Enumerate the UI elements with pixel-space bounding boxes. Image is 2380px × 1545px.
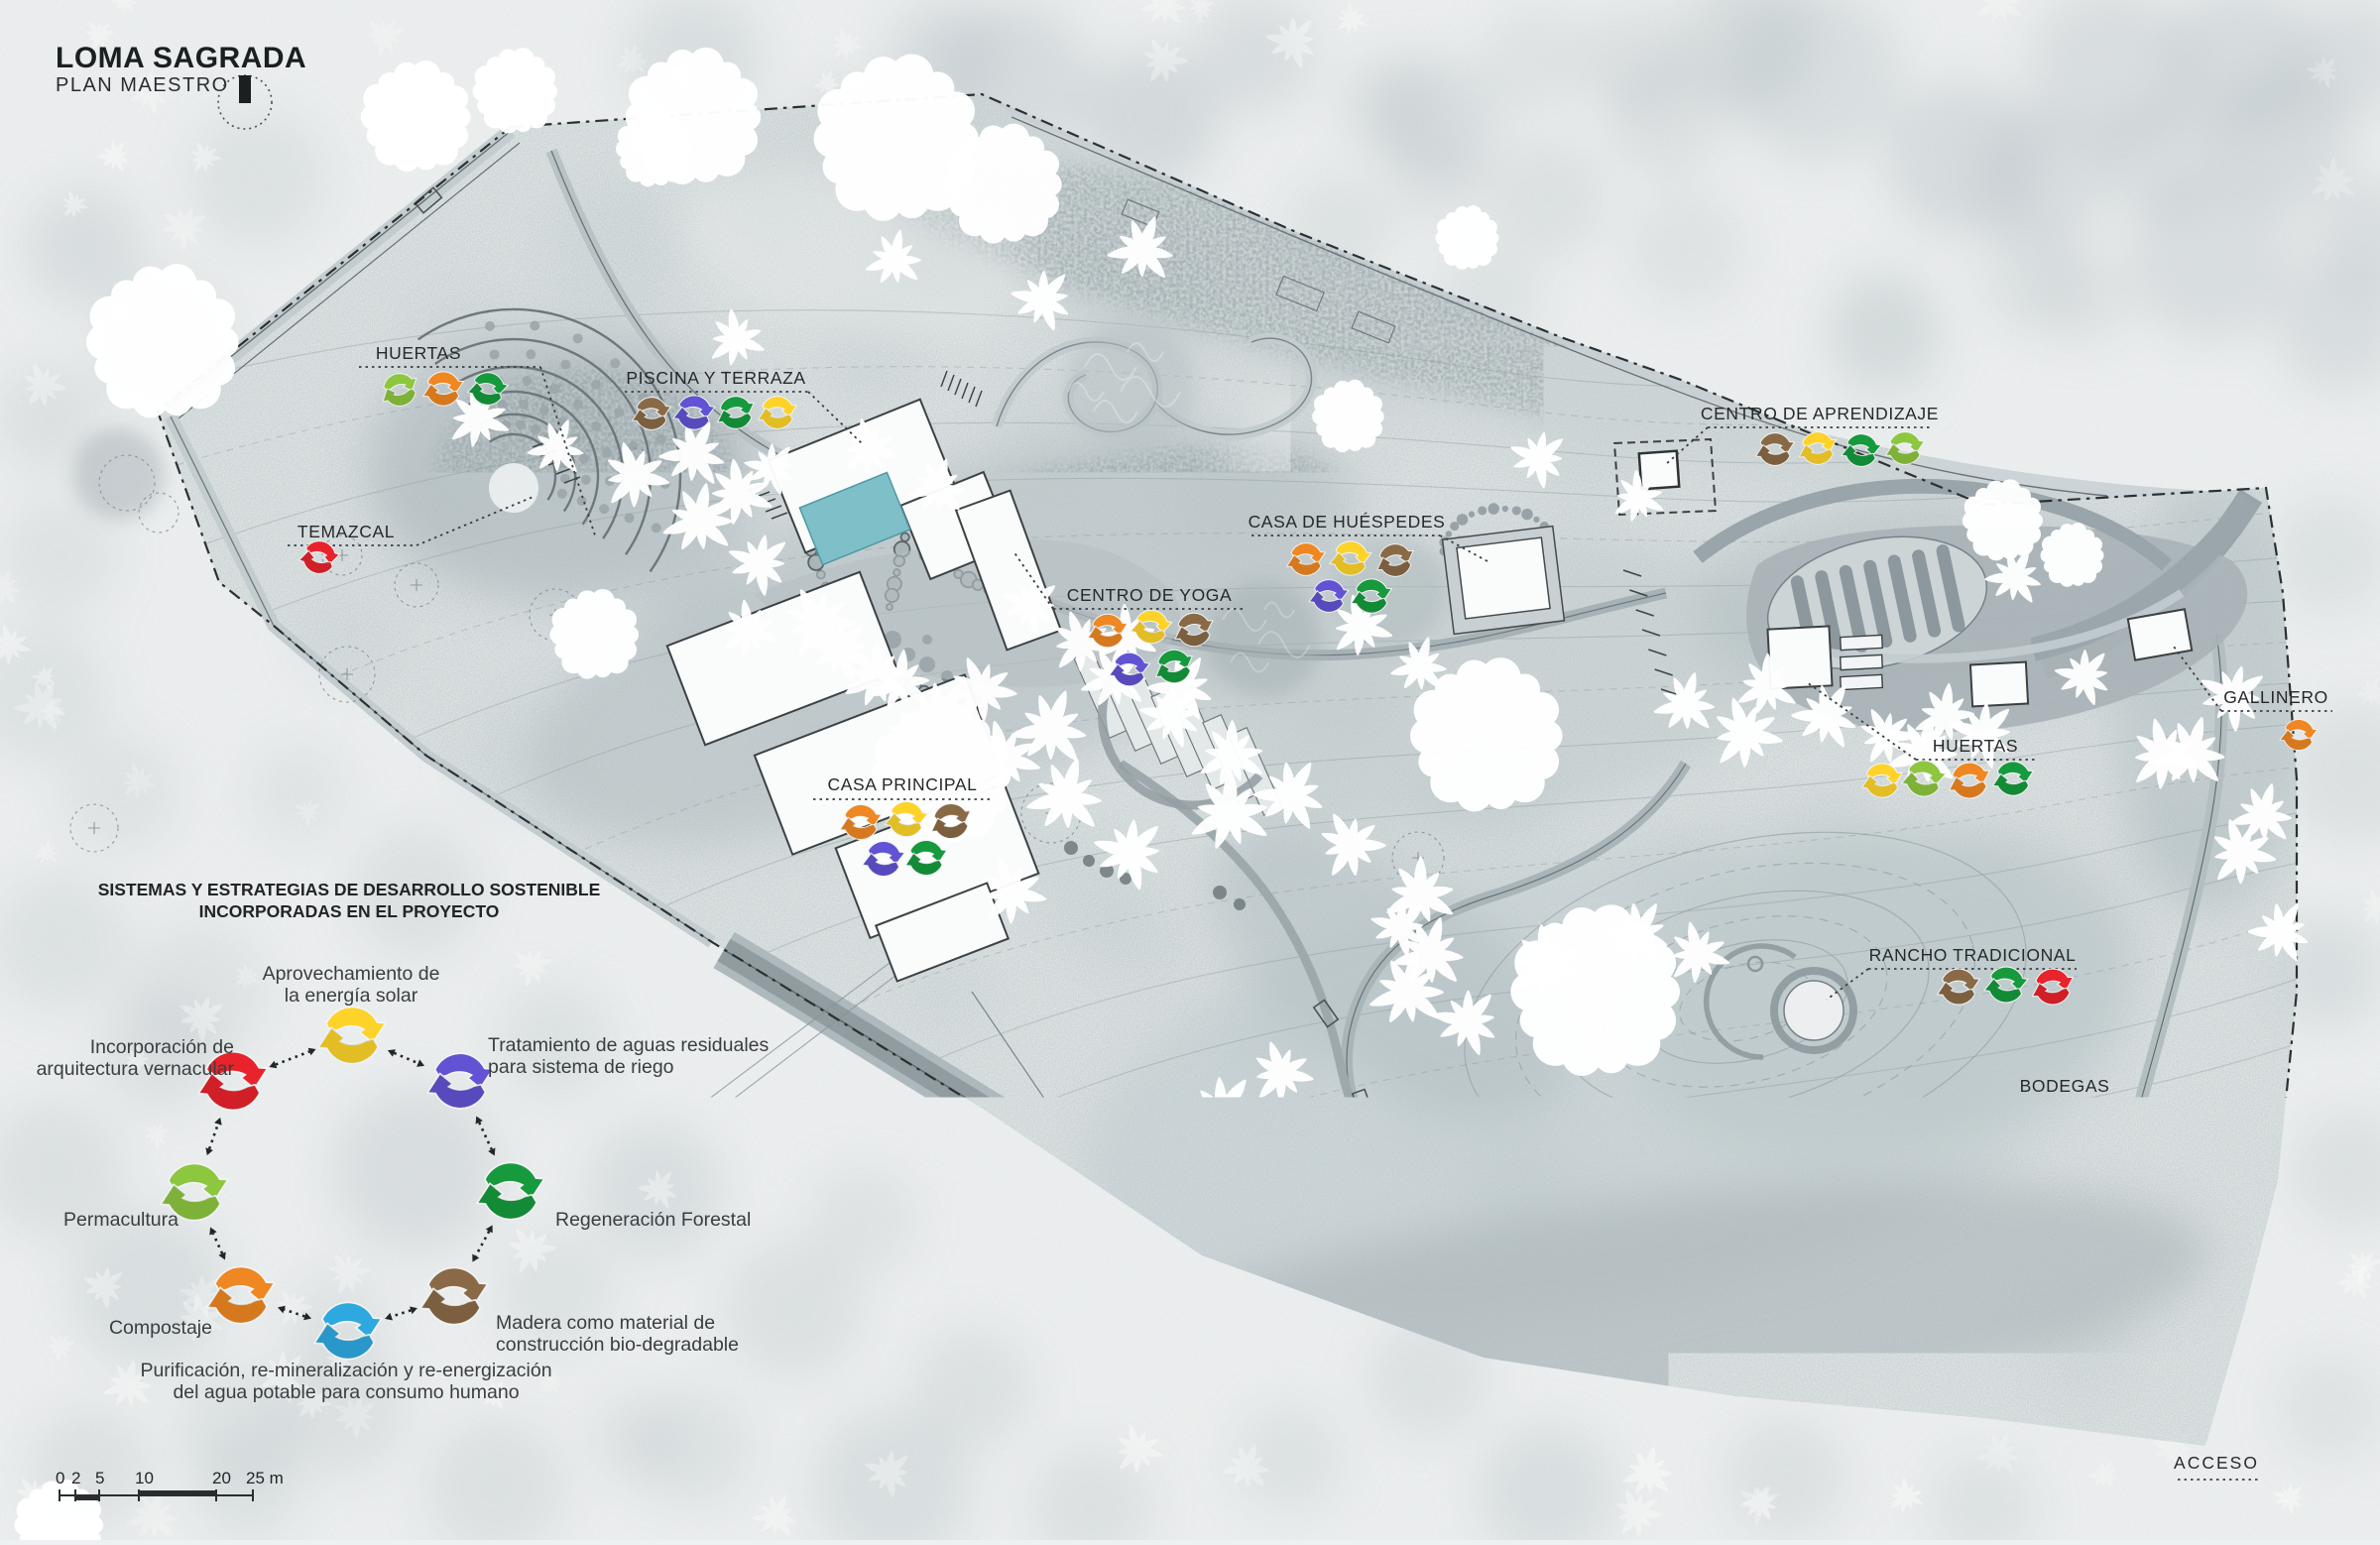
svg-text:RANCHO TRADICIONAL: RANCHO TRADICIONAL: [1869, 945, 2077, 965]
svg-text:TEMAZCAL: TEMAZCAL: [297, 522, 395, 541]
svg-text:Permacultura: Permacultura: [63, 1209, 178, 1231]
svg-text:ACCESO: ACCESO: [2174, 1453, 2259, 1473]
svg-text:0: 0: [56, 1469, 64, 1487]
svg-text:+23.00: +23.00: [1311, 1332, 1345, 1344]
svg-text:HUERTAS: HUERTAS: [376, 343, 461, 363]
svg-text:del agua potable para consumo: del agua potable para consumo humano: [173, 1381, 519, 1403]
svg-text:Purificación, re-mineralizació: Purificación, re-mineralización y re-ene…: [140, 1360, 551, 1381]
svg-text:LOMA SAGRADA: LOMA SAGRADA: [56, 42, 306, 74]
svg-text:+22.00: +22.00: [1317, 1354, 1351, 1366]
svg-text:arquitectura vernacular: arquitectura vernacular: [37, 1058, 235, 1080]
svg-text:SISTEMAS Y ESTRATEGIAS DE DESA: SISTEMAS Y ESTRATEGIAS DE DESARROLLO SOS…: [98, 880, 601, 899]
svg-text:CENTRO DE YOGA: CENTRO DE YOGA: [1067, 585, 1233, 605]
svg-text:construcción bio-degradable: construcción bio-degradable: [496, 1334, 739, 1356]
svg-text:10: 10: [135, 1469, 154, 1487]
svg-text:+21.00: +21.00: [1323, 1375, 1357, 1387]
svg-text:Madera como material de: Madera como material de: [496, 1312, 715, 1334]
svg-text:HUERTAS: HUERTAS: [1933, 736, 2018, 756]
svg-text:20: 20: [212, 1469, 231, 1487]
svg-text:Regeneración Forestal: Regeneración Forestal: [555, 1209, 751, 1231]
svg-text:25 m: 25 m: [246, 1469, 284, 1487]
svg-text:CASA PRINCIPAL: CASA PRINCIPAL: [827, 774, 977, 794]
svg-text:5: 5: [95, 1469, 104, 1487]
svg-text:2: 2: [71, 1469, 80, 1487]
svg-text:BODEGAS: BODEGAS: [2020, 1076, 2110, 1096]
svg-text:INCORPORADAS EN EL PROYECTO: INCORPORADAS EN EL PROYECTO: [199, 901, 500, 921]
svg-text:para sistema de riego: para sistema de riego: [488, 1056, 674, 1078]
svg-text:Compostaje: Compostaje: [109, 1317, 212, 1339]
svg-text:PISCINA Y TERRAZA: PISCINA Y TERRAZA: [626, 368, 805, 388]
svg-text:CASA DE HUÉSPEDES: CASA DE HUÉSPEDES: [1249, 512, 1446, 532]
svg-text:Aprovechamiento de: Aprovechamiento de: [263, 963, 440, 985]
svg-text:Incorporación de: Incorporación de: [90, 1036, 234, 1058]
svg-text:la energía solar: la energía solar: [285, 985, 418, 1007]
svg-text:CASA DEL CUIDADOR: CASA DEL CUIDADOR: [1180, 1169, 1371, 1189]
svg-text:GALLINERO: GALLINERO: [2223, 687, 2328, 707]
svg-text:Tratamiento de aguas residuale: Tratamiento de aguas residuales: [488, 1034, 770, 1056]
svg-text:PLAN MAESTRO: PLAN MAESTRO: [56, 74, 229, 96]
svg-text:CENTRO DE APRENDIZAJE: CENTRO DE APRENDIZAJE: [1701, 404, 1939, 423]
